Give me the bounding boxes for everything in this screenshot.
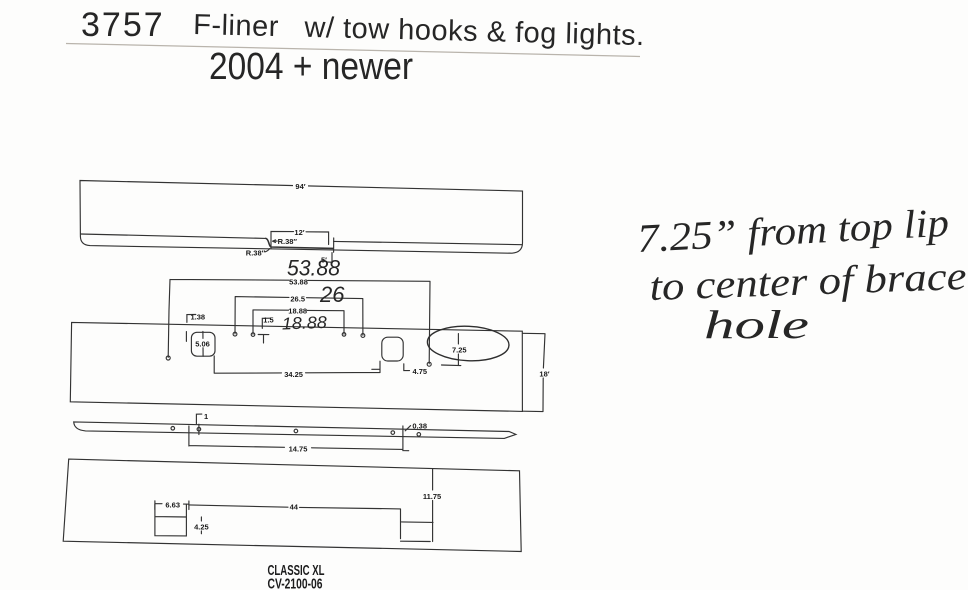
svg-text:3757: 3757	[81, 6, 165, 44]
svg-text:R.38″: R.38″	[246, 249, 266, 258]
svg-text:34.25: 34.25	[284, 370, 303, 379]
svg-text:4.75: 4.75	[412, 367, 427, 376]
svg-text:7.25: 7.25	[452, 345, 467, 354]
svg-text:hole: hole	[704, 302, 809, 347]
svg-text:1.5: 1.5	[263, 316, 273, 325]
svg-text:18′: 18′	[539, 370, 549, 379]
svg-text:53.88: 53.88	[289, 278, 308, 287]
svg-text:5.06: 5.06	[195, 339, 210, 348]
svg-text:6.63: 6.63	[165, 501, 180, 510]
svg-text:2004 + newer: 2004 + newer	[209, 46, 413, 88]
svg-text:94′: 94′	[295, 182, 305, 191]
svg-text:R.38″: R.38″	[278, 237, 298, 246]
svg-text:1: 1	[204, 412, 208, 421]
svg-text:18.88: 18.88	[281, 313, 327, 334]
svg-text:26.5: 26.5	[290, 294, 305, 303]
svg-text:4.25: 4.25	[194, 522, 209, 531]
svg-text:11.75: 11.75	[423, 492, 441, 501]
svg-text:1.38: 1.38	[190, 312, 205, 321]
svg-text:CV-2100-06: CV-2100-06	[268, 577, 323, 590]
svg-text:14.75: 14.75	[289, 445, 308, 454]
svg-text:0.38: 0.38	[412, 422, 427, 431]
svg-text:26: 26	[319, 282, 345, 307]
svg-text:12′: 12′	[294, 228, 304, 237]
svg-text:44: 44	[290, 503, 299, 512]
